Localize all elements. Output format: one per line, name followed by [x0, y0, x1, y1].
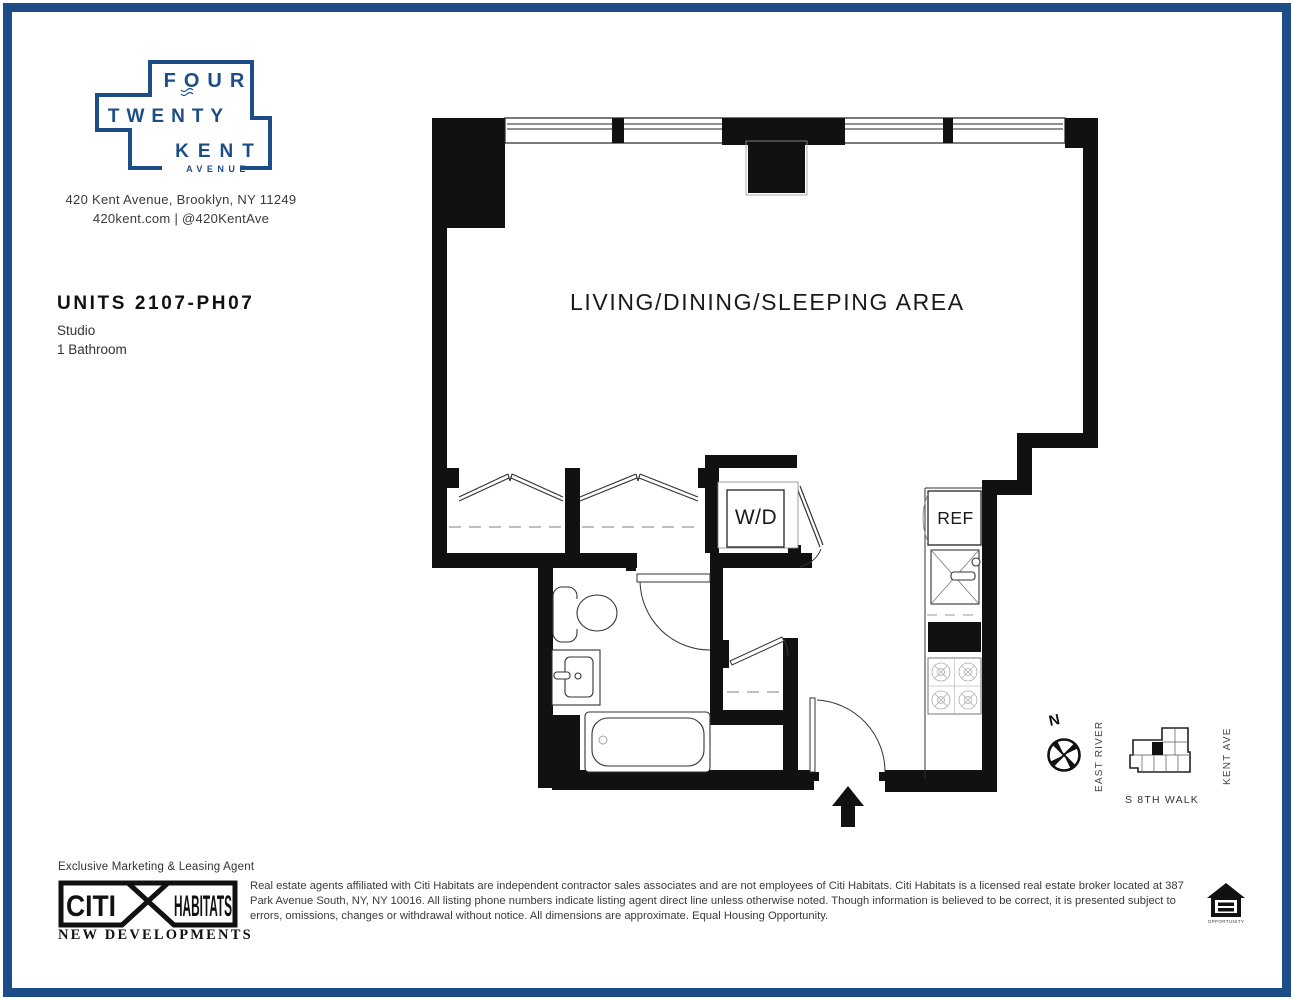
bathtub: [585, 712, 710, 772]
bathroom-door: [637, 574, 710, 650]
refrigerator-label: REF: [929, 508, 982, 529]
closet2-bifold-door: [580, 474, 698, 501]
floorplan-flyer: FOUR TWENTY KENT AVENUE 420 Kent Avenue,…: [0, 0, 1294, 1000]
walls: [432, 118, 1098, 792]
living-area-label: LIVING/DINING/SLEEPING AREA: [570, 289, 940, 316]
wall-wd-left: [705, 455, 719, 553]
compass-rose-icon: [1042, 733, 1086, 777]
logo-citi-text: CITI: [66, 890, 116, 923]
bath-door-hinge: [626, 558, 636, 571]
entry-jamb-right: [879, 772, 888, 781]
wall-closet3-bottom: [710, 710, 798, 725]
wall-closet-bottom-left: [432, 553, 637, 568]
wall-kitchen-right: [982, 480, 997, 792]
logo-line-kent: KENT: [175, 141, 263, 162]
wall-closet1-jamb: [447, 468, 459, 488]
floorplan-drawing: [430, 110, 1110, 840]
s8th-walk-label: S 8TH WALK: [1124, 794, 1200, 806]
wall-closet-divider: [565, 468, 580, 555]
bathroom-sink: [552, 650, 600, 705]
kitchen-sink: [931, 550, 980, 604]
kent-ave-label: KENT AVE: [1222, 727, 1233, 785]
four-twenty-kent-logo: FOUR TWENTY KENT AVENUE: [85, 55, 285, 183]
equal-housing-icon: OPPORTUNITY: [1206, 882, 1246, 932]
eho-opportunity-text: OPPORTUNITY: [1208, 919, 1244, 924]
window-mullion: [612, 118, 624, 143]
east-river-label: EAST RIVER: [1094, 721, 1105, 792]
entry-jamb-left: [810, 772, 819, 781]
logo-line-four: FOUR: [164, 70, 253, 92]
unit-type: Studio: [57, 322, 127, 341]
closet1-bifold-door: [459, 474, 563, 501]
wall-bath-bottom: [552, 770, 814, 790]
window-mullion: [943, 118, 953, 143]
wall-closet-bottom-right: [710, 553, 812, 568]
unit-title: UNITS 2107-PH07: [57, 293, 254, 315]
wall-bath-left: [538, 568, 553, 715]
toilet: [553, 587, 617, 642]
logo-line-twenty: TWENTY: [108, 106, 230, 127]
wall-center-column-stem: [748, 143, 805, 193]
wall-right: [1083, 118, 1098, 448]
entry-arrow-icon: [832, 786, 864, 827]
wall-closet3-jamb: [710, 640, 729, 668]
address-line1: 420 Kent Avenue, Brooklyn, NY 11249: [55, 191, 307, 210]
wall-left: [432, 218, 447, 568]
disclaimer-text: Real estate agents affiliated with Citi …: [250, 879, 1192, 924]
washer-dryer-label: W/D: [727, 506, 785, 530]
unit-subtitle: Studio 1 Bathroom: [57, 322, 127, 359]
new-developments-label: NEW DEVELOPMENTS: [58, 927, 253, 944]
unit-bathrooms: 1 Bathroom: [57, 341, 127, 360]
site-plan-map: [1128, 722, 1196, 780]
citi-habitats-logo: CITI HABITATS: [58, 880, 238, 928]
oven-appliance: [928, 622, 981, 652]
wall-bottom-right: [885, 770, 997, 792]
range-stove: [928, 658, 981, 714]
entry-door: [810, 698, 885, 772]
logo-habitats-text: HABITATS: [174, 890, 232, 923]
closet3-door: [730, 637, 788, 665]
logo-line-avenue: AVENUE: [186, 164, 250, 174]
address-line2: 420kent.com | @420KentAve: [55, 210, 307, 229]
address-block: 420 Kent Avenue, Brooklyn, NY 11249 420k…: [55, 191, 307, 229]
wall-wd-top: [705, 455, 797, 468]
wall-column-topleft: [432, 118, 505, 228]
site-plan-unit-highlight: [1152, 742, 1163, 755]
agent-line: Exclusive Marketing & Leasing Agent: [58, 861, 254, 873]
